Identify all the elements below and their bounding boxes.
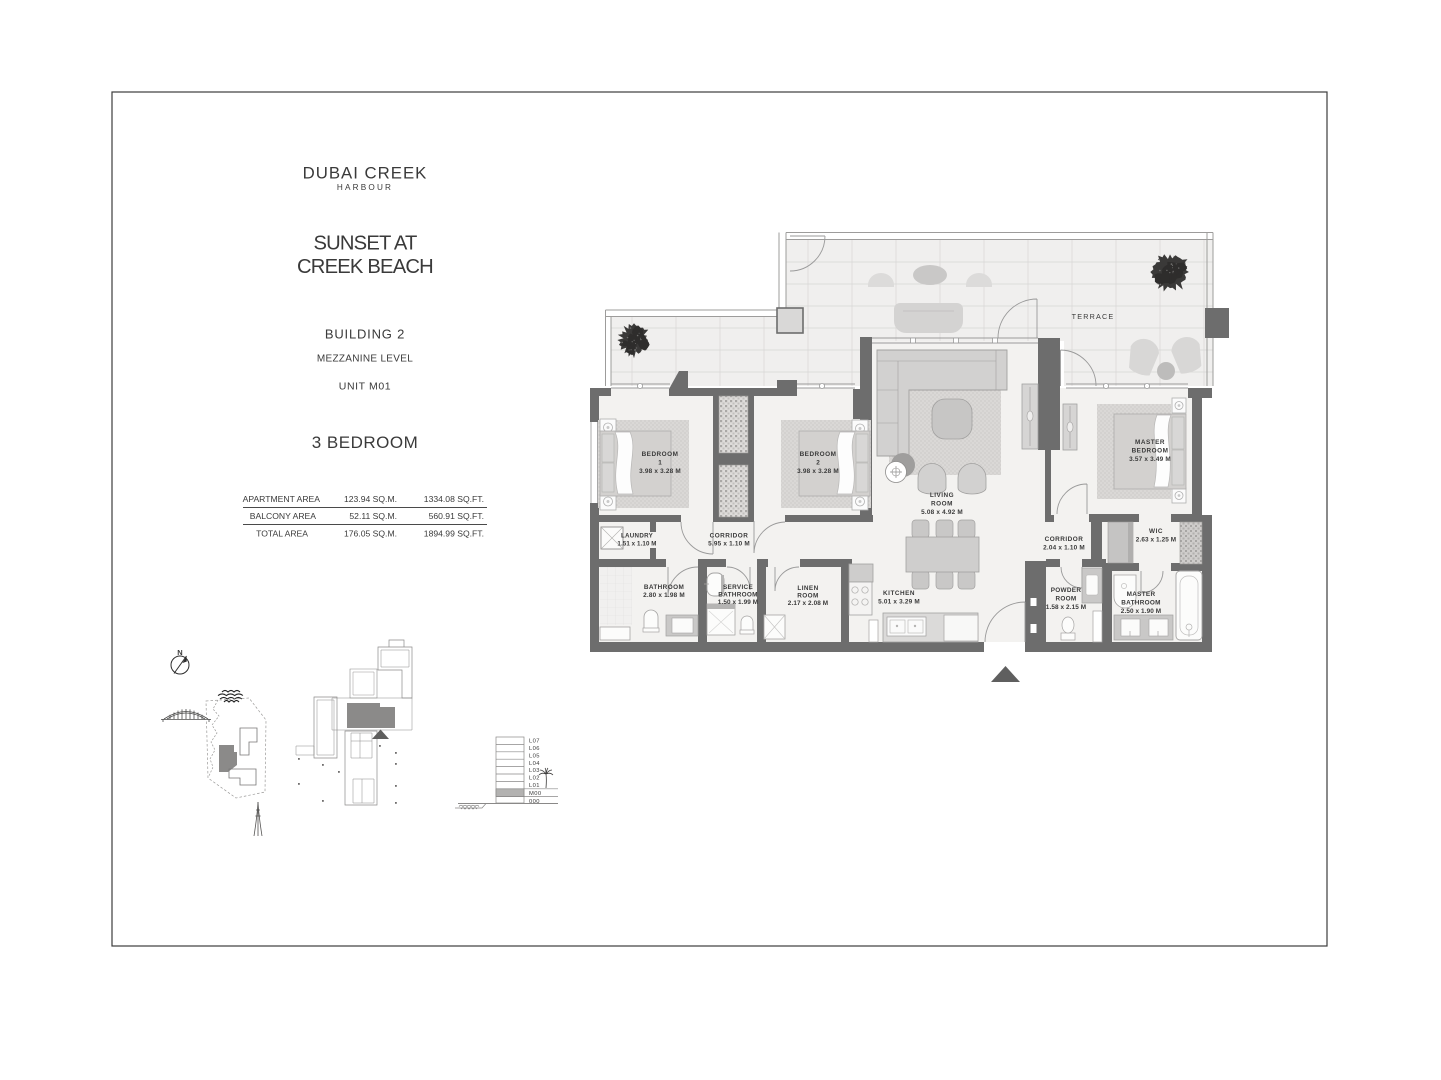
svg-text:2.63 x 1.25 M: 2.63 x 1.25 M — [1136, 537, 1176, 544]
svg-text:000: 000 — [529, 799, 540, 805]
svg-text:123.94 SQ.M.: 123.94 SQ.M. — [344, 494, 397, 504]
svg-text:5.95 x 1.10 M: 5.95 x 1.10 M — [708, 541, 750, 548]
svg-text:MASTER: MASTER — [1135, 439, 1165, 446]
svg-text:5.08 x 4.92 M: 5.08 x 4.92 M — [921, 509, 963, 516]
svg-text:DUBAI CREEK: DUBAI CREEK — [303, 164, 428, 183]
svg-text:1334.08 SQ.FT.: 1334.08 SQ.FT. — [424, 494, 484, 504]
svg-text:TOTAL AREA: TOTAL AREA — [256, 529, 308, 539]
svg-text:LIVING: LIVING — [930, 492, 954, 499]
svg-text:WIC: WIC — [1149, 528, 1163, 535]
svg-text:2: 2 — [816, 460, 820, 467]
svg-text:176.05 SQ.M.: 176.05 SQ.M. — [344, 529, 397, 539]
svg-text:BATHROOM: BATHROOM — [644, 584, 684, 591]
svg-text:3 BEDROOM: 3 BEDROOM — [312, 433, 419, 452]
svg-text:ROOM: ROOM — [1055, 596, 1076, 603]
svg-text:ROOM: ROOM — [797, 593, 818, 600]
svg-text:LAUNDRY: LAUNDRY — [621, 533, 654, 540]
svg-text:KITCHEN: KITCHEN — [883, 590, 915, 597]
svg-text:L06: L06 — [529, 746, 540, 752]
svg-text:BUILDING 2: BUILDING 2 — [325, 327, 405, 342]
svg-text:BATHROOM: BATHROOM — [1121, 600, 1161, 607]
svg-text:CORRIDOR: CORRIDOR — [1045, 536, 1084, 543]
svg-text:HARBOUR: HARBOUR — [337, 183, 393, 192]
svg-text:5.01 x 3.29 M: 5.01 x 3.29 M — [878, 599, 920, 606]
svg-text:3.98 x 3.28 M: 3.98 x 3.28 M — [639, 468, 681, 475]
svg-text:3.98 x 3.28 M: 3.98 x 3.28 M — [797, 468, 839, 475]
svg-text:BEDROOM: BEDROOM — [800, 451, 837, 458]
svg-text:560.91 SQ.FT.: 560.91 SQ.FT. — [429, 511, 484, 521]
svg-text:SUNSET AT: SUNSET AT — [313, 233, 417, 255]
svg-text:L07: L07 — [529, 739, 540, 745]
svg-text:ROOM: ROOM — [931, 501, 953, 508]
svg-text:1894.99 SQ.FT.: 1894.99 SQ.FT. — [424, 529, 484, 539]
svg-text:LINEN: LINEN — [797, 585, 818, 592]
svg-text:BALCONY AREA: BALCONY AREA — [250, 511, 316, 521]
svg-text:2.80 x 1.98 M: 2.80 x 1.98 M — [643, 592, 685, 599]
svg-text:1.58 x 2.15 M: 1.58 x 2.15 M — [1046, 604, 1086, 611]
svg-text:BATHROOM: BATHROOM — [718, 592, 758, 599]
svg-text:TERRACE: TERRACE — [1072, 312, 1115, 321]
svg-text:MEZZANINE LEVEL: MEZZANINE LEVEL — [317, 354, 413, 365]
svg-text:L03: L03 — [529, 768, 540, 774]
svg-text:3.57 x 3.49 M: 3.57 x 3.49 M — [1129, 456, 1171, 463]
svg-text:SERVICE: SERVICE — [723, 584, 753, 591]
svg-text:52.11 SQ.M.: 52.11 SQ.M. — [349, 511, 397, 521]
svg-text:M00: M00 — [529, 791, 541, 797]
svg-text:1: 1 — [658, 460, 662, 467]
svg-text:CREEK BEACH: CREEK BEACH — [297, 256, 433, 278]
svg-text:BEDROOM: BEDROOM — [1132, 448, 1169, 455]
svg-text:N: N — [177, 648, 182, 657]
svg-text:UNIT M01: UNIT M01 — [339, 381, 391, 393]
svg-text:2.04 x 1.10 M: 2.04 x 1.10 M — [1043, 545, 1085, 552]
svg-text:2.17 x 2.08 M: 2.17 x 2.08 M — [788, 600, 828, 607]
svg-text:CORRIDOR: CORRIDOR — [710, 533, 749, 540]
svg-text:2.50 x 1.90 M: 2.50 x 1.90 M — [1121, 608, 1161, 615]
svg-text:POWDER: POWDER — [1051, 587, 1082, 594]
svg-text:MASTER: MASTER — [1127, 591, 1156, 598]
svg-text:1.51 x 1.10 M: 1.51 x 1.10 M — [617, 541, 656, 548]
svg-text:APARTMENT AREA: APARTMENT AREA — [243, 494, 321, 504]
svg-text:L02: L02 — [529, 776, 540, 782]
svg-text:BEDROOM: BEDROOM — [642, 451, 679, 458]
svg-text:L01: L01 — [529, 783, 540, 789]
svg-text:L04: L04 — [529, 761, 540, 767]
svg-text:1.50 x 1.99 M: 1.50 x 1.99 M — [718, 599, 758, 606]
svg-text:L05: L05 — [529, 753, 540, 759]
